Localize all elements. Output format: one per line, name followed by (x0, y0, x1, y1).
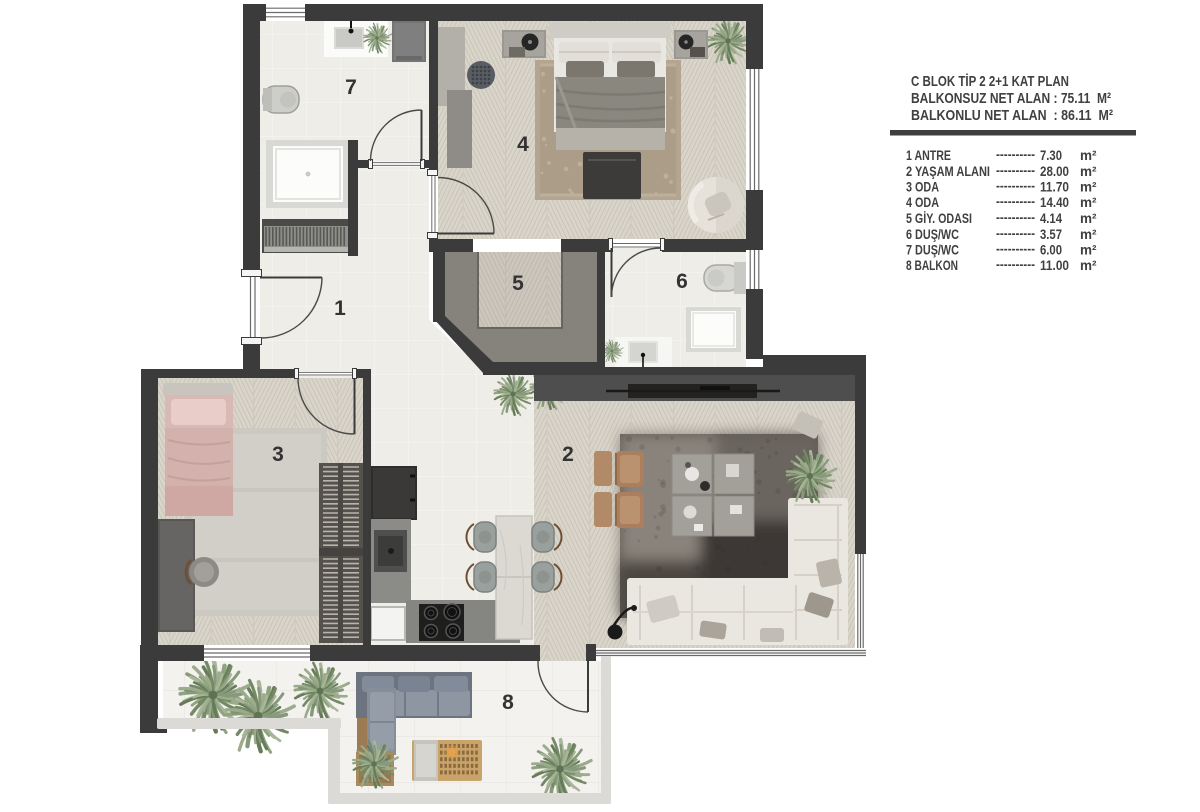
svg-text:----------: ---------- (996, 179, 1035, 194)
svg-text:2: 2 (562, 443, 574, 466)
svg-text:6.00: 6.00 (1040, 243, 1062, 258)
svg-text:11.00: 11.00 (1040, 258, 1069, 273)
svg-text:m²: m² (1080, 211, 1097, 226)
svg-text:----------: ---------- (996, 226, 1035, 241)
svg-text:m²: m² (1080, 258, 1097, 273)
svg-text:6 DUŞ/WC: 6 DUŞ/WC (906, 227, 959, 242)
svg-text:2 YAŞAM ALANI: 2 YAŞAM ALANI (906, 164, 990, 179)
svg-text:----------: ---------- (996, 194, 1035, 209)
svg-text:----------: ---------- (996, 147, 1035, 162)
svg-text:6: 6 (676, 270, 688, 293)
svg-text:BALKONLU NET ALAN : 86.11 M²: BALKONLU NET ALAN : 86.11 M² (911, 107, 1113, 124)
svg-text:----------: ---------- (996, 242, 1035, 257)
svg-text:1 ANTRE: 1 ANTRE (906, 148, 951, 163)
svg-text:8 BALKON: 8 BALKON (906, 258, 958, 273)
svg-text:----------: ---------- (996, 163, 1035, 178)
svg-text:m²: m² (1080, 195, 1097, 210)
svg-text:14.40: 14.40 (1040, 195, 1069, 210)
svg-text:4: 4 (517, 133, 529, 156)
svg-text:8: 8 (502, 691, 514, 714)
svg-text:m²: m² (1080, 227, 1097, 242)
svg-text:28.00: 28.00 (1040, 164, 1069, 179)
svg-text:m²: m² (1080, 180, 1097, 195)
svg-text:7: 7 (345, 76, 357, 99)
svg-text:m²: m² (1080, 164, 1097, 179)
svg-text:5 GİY. ODASI: 5 GİY. ODASI (906, 211, 972, 226)
svg-text:m²: m² (1080, 243, 1097, 258)
svg-text:7.30: 7.30 (1040, 148, 1062, 163)
svg-text:4.14: 4.14 (1040, 211, 1062, 226)
svg-text:7 DUŞ/WC: 7 DUŞ/WC (906, 243, 959, 258)
svg-text:5: 5 (512, 272, 524, 295)
svg-text:11.70: 11.70 (1040, 180, 1069, 195)
svg-text:m²: m² (1080, 148, 1097, 163)
svg-text:3.57: 3.57 (1040, 227, 1062, 242)
svg-text:----------: ---------- (996, 257, 1035, 272)
svg-text:3: 3 (272, 443, 284, 466)
svg-text:----------: ---------- (996, 210, 1035, 225)
svg-text:1: 1 (334, 297, 346, 320)
svg-text:BALKONSUZ NET ALAN : 75.11 M²: BALKONSUZ NET ALAN : 75.11 M² (911, 90, 1111, 107)
svg-text:C BLOK TİP 2 2+1 KAT PLAN: C BLOK TİP 2 2+1 KAT PLAN (911, 73, 1069, 90)
svg-text:3 ODA: 3 ODA (906, 180, 939, 195)
svg-text:4 ODA: 4 ODA (906, 195, 939, 210)
